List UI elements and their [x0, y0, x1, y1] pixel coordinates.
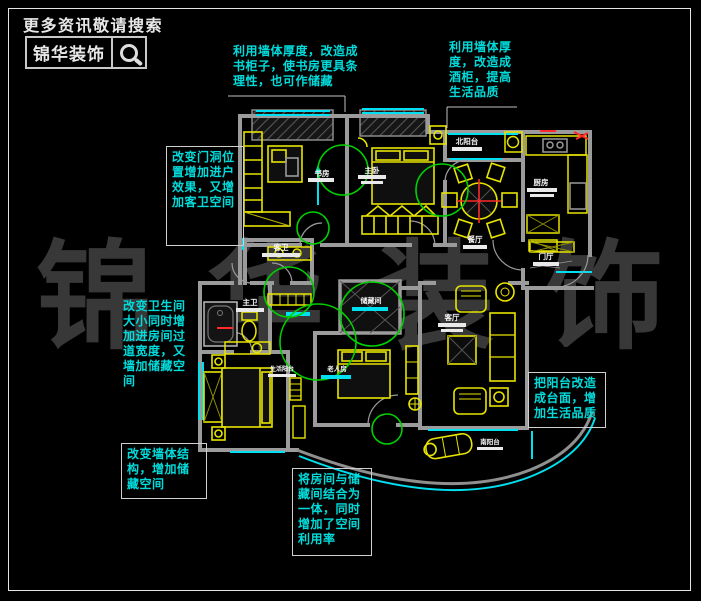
callout-line: 道宽度，又: [123, 344, 186, 359]
callout-line: 墙加储藏空: [123, 359, 186, 374]
room-label-north-balcony: 北阳台: [456, 136, 479, 146]
dimension-text: [463, 245, 487, 249]
dimension-text: [308, 178, 334, 182]
callout-line: 利用率: [298, 532, 366, 547]
room-label-living-balcony: 生活阳台: [270, 365, 294, 373]
callout-line: 加生活品质: [534, 406, 600, 421]
room-label-living-room: 客厅: [444, 312, 460, 322]
south-balcony-furniture: [422, 432, 473, 460]
callout-line: 酒柜，提高: [449, 70, 512, 85]
callout-line: 置增加进户: [172, 165, 238, 180]
dimension-text: [236, 308, 264, 312]
dimension-text: [533, 262, 559, 266]
room-label-elder-room: 老人房: [326, 364, 347, 373]
living-balcony-furniture: [290, 378, 305, 438]
room-label-foyer: 门厅: [539, 251, 554, 261]
dimension-text: [268, 374, 296, 377]
callout-line: 利用墙体厚: [449, 40, 512, 55]
room-label-study: 书房: [315, 168, 330, 178]
floorplan-page: 锦 华 装 饰 更多资讯敬请搜索 锦华装饰: [0, 0, 701, 601]
callout-line: 藏空间: [127, 477, 201, 492]
callout-line: 效果，又增: [172, 180, 238, 195]
room-label-storage: 储藏间: [360, 296, 382, 305]
dimension-text: [452, 147, 482, 151]
dimension-text: [262, 253, 300, 257]
room-label-master-bedroom: 主卧: [365, 165, 380, 175]
callout-line: 改变卫生间: [123, 299, 186, 314]
callout-balcony-counter: 把阳台改造 成台面，增 加生活品质: [528, 372, 606, 428]
callout-line: 将房间与储: [298, 472, 366, 487]
annotation-circle: [372, 414, 402, 444]
dimension-text: [477, 447, 503, 450]
room-label-south-balcony: 南阳台: [480, 437, 500, 446]
dimension-text: [527, 188, 557, 192]
dimension-text: [352, 307, 388, 311]
callout-study-bookcase: 利用墙体厚度，改造成 书柜子，使书房更具条 理性，也可作储藏: [233, 44, 358, 89]
callout-line: 间: [123, 374, 186, 389]
callout-line: 成台面，增: [534, 391, 600, 406]
callout-line: 把阳台改造: [534, 376, 600, 391]
callout-wine-cabinet: 利用墙体厚 度，改造成 酒柜，提高 生活品质: [449, 40, 512, 100]
master-bedroom-furniture: [358, 126, 446, 234]
callout-line: 加客卫空间: [172, 195, 238, 210]
callout-line: 一体，同时: [298, 502, 366, 517]
dimension-text: [361, 181, 383, 184]
dimension-text: [321, 375, 351, 379]
room-label-dining: 餐厅: [467, 234, 483, 244]
callout-room-storage-merge: 将房间与储 藏间结合为 一体，同时 增加了空间 利用率: [292, 468, 372, 556]
callout-line: 度，改造成: [449, 55, 512, 70]
dimension-text: [438, 323, 466, 327]
callout-door-opening: 改变门洞位 置增加进户 效果，又增 加客卫空间: [166, 146, 244, 246]
callout-bathroom-resize: 改变卫生间 大小同时增 加进房间过 道宽度，又 墙加储藏空 间: [123, 299, 186, 389]
room-label-kitchen: 厨房: [534, 177, 549, 187]
callout-line: 增加了空间: [298, 517, 366, 532]
callout-line: 生活品质: [449, 85, 512, 100]
second-bedroom-furniture: [204, 355, 272, 440]
dimension-text: [530, 194, 554, 197]
callout-line: 书柜子，使书房更具条: [233, 59, 358, 74]
callout-line: 大小同时增: [123, 314, 186, 329]
room-label-master-bath: 主卫: [243, 297, 258, 307]
callout-line: 构，增加储: [127, 462, 201, 477]
room-label-guest-bath: 客卫: [273, 242, 289, 252]
callout-line: 理性，也可作储藏: [233, 74, 358, 89]
callout-wall-structure: 改变墙体结 构，增加储 藏空间: [121, 443, 207, 499]
dimension-text: [441, 329, 463, 332]
callout-line: 改变墙体结: [127, 447, 201, 462]
callout-line: 改变门洞位: [172, 150, 238, 165]
kitchen-furniture: [526, 136, 587, 251]
dimension-text: [358, 175, 386, 179]
study-furniture: [244, 132, 302, 226]
callout-line: 加进房间过: [123, 329, 186, 344]
callout-line: 利用墙体厚度，改造成: [233, 44, 358, 59]
callout-line: 藏间结合为: [298, 487, 366, 502]
living-room-furniture: [448, 283, 515, 414]
